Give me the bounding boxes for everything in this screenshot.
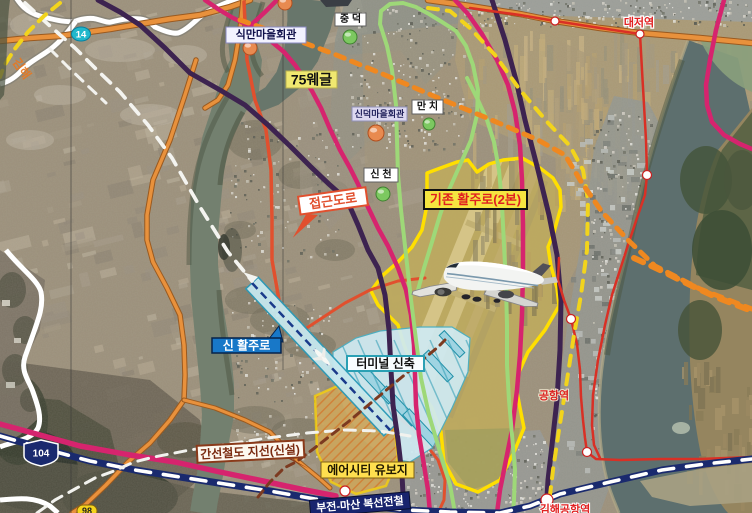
svg-text:김해공항역: 김해공항역 <box>540 502 591 513</box>
svg-text:대저역: 대저역 <box>624 15 654 29</box>
svg-text:공항역: 공항역 <box>539 388 569 402</box>
svg-text:터미널 신축: 터미널 신축 <box>356 356 415 371</box>
svg-text:신 활주로: 신 활주로 <box>223 338 271 353</box>
svg-text:14: 14 <box>76 30 87 41</box>
svg-text:식만마을회관: 식만마을회관 <box>236 27 297 41</box>
svg-text:104: 104 <box>33 449 50 460</box>
svg-text:신 천: 신 천 <box>370 168 391 181</box>
svg-text:중 덕: 중 덕 <box>340 12 361 25</box>
svg-text:에어시티 유보지: 에어시티 유보지 <box>327 462 408 477</box>
svg-text:75웨글: 75웨글 <box>291 72 332 88</box>
svg-text:기존 활주로(2본): 기존 활주로(2본) <box>430 192 521 207</box>
svg-text:98: 98 <box>82 506 92 513</box>
svg-text:신덕마을회관: 신덕마을회관 <box>355 108 405 119</box>
svg-text:만 치: 만 치 <box>417 100 438 113</box>
